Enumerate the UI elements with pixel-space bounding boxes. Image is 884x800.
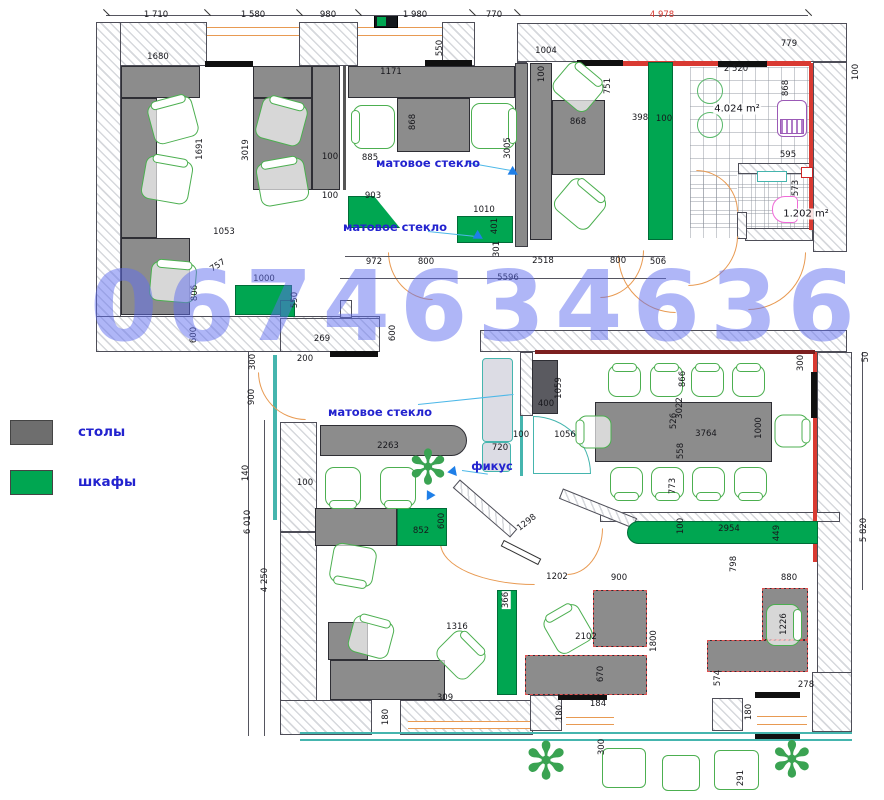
dimension-label: 3019 <box>242 139 251 161</box>
dimension-label: 868 <box>782 80 791 96</box>
dimension-label: 140 <box>242 465 251 481</box>
dimension-label: 600 <box>389 325 398 341</box>
dimension-label: 269 <box>314 335 330 344</box>
annotation-label: матовое стекло <box>376 156 480 170</box>
dimension-label: 670 <box>597 666 606 682</box>
dimension-label: 2518 <box>532 257 554 266</box>
dimension-label: 868 <box>409 114 418 130</box>
legend-row-cabinets: шкафы <box>0 470 220 500</box>
dimension-label: 4 250 <box>261 568 270 592</box>
dimension-label: 1316 <box>446 623 468 632</box>
dimension-label: 806 <box>191 285 200 301</box>
dimension-label: 200 <box>297 355 313 364</box>
dimension-label: 1680 <box>147 53 169 62</box>
dimension-label: 900 <box>248 389 257 405</box>
dimension-label: 366 <box>502 591 511 609</box>
dimension-label: 2263 <box>377 442 399 451</box>
dimension-label: 3005 <box>504 137 513 159</box>
dimension-label: 100 <box>322 153 338 162</box>
floor-plan: ✻✻✻ 1 7101 5809801 9807704 9781680550117… <box>0 0 884 800</box>
dimension-label: 400 <box>538 400 554 409</box>
dimension-label: 2102 <box>575 633 597 642</box>
dimension-label: 751 <box>604 78 613 94</box>
dimension-label: 773 <box>669 478 678 494</box>
dimension-label: 1800 <box>650 630 659 652</box>
dimension-label: 506 <box>650 258 666 267</box>
dimension-label: 600 <box>190 327 199 343</box>
dimension-label: 291 <box>737 770 746 786</box>
dimension-label: 100 <box>513 431 529 440</box>
dimension-label: 600 <box>438 513 447 529</box>
dimension-label: 526 <box>670 413 679 429</box>
annotation-label: матовое стекло <box>343 220 447 234</box>
dimension-label: 903 <box>365 192 381 201</box>
room-area-label: 1.202 m² <box>782 209 830 220</box>
dimension-label: 300 <box>598 739 607 755</box>
dimension-label: 300 <box>249 354 258 370</box>
dimension-label: 573 <box>792 180 801 196</box>
dimension-label: 100 <box>322 192 338 201</box>
dimension-label: 309 <box>437 694 453 703</box>
dimension-label: 398 <box>632 114 648 123</box>
dimension-label: 868 <box>570 118 586 127</box>
annotation-label: матовое стекло <box>328 405 432 419</box>
dimension-label: 278 <box>798 681 814 690</box>
dimension-label: 550 <box>291 292 300 308</box>
dimension-label: 595 <box>780 151 796 160</box>
dimension-label: 449 <box>773 525 782 541</box>
dimension-label: 180 <box>382 709 391 725</box>
dimension-label: 5 820 <box>860 518 869 542</box>
dimension-label: 980 <box>320 11 336 20</box>
dimension-label: 798 <box>730 556 739 572</box>
dimension-label: 1004 <box>535 47 557 56</box>
legend: столы шкафы <box>0 410 220 520</box>
dimension-label: 1202 <box>546 573 568 582</box>
dimension-label: 1000 <box>755 417 764 439</box>
dimension-label: 972 <box>366 258 382 267</box>
dimension-label: 1000 <box>253 275 275 284</box>
dimension-label: 300 <box>797 355 806 371</box>
dimension-label: 100 <box>852 64 861 80</box>
cabinet-color-swatch <box>10 470 53 495</box>
dimension-label: 1226 <box>780 613 789 635</box>
legend-row-desks: столы <box>0 420 220 450</box>
dimension-label: 401 <box>491 218 500 234</box>
dimension-label: 50 <box>862 352 871 363</box>
dimension-label: 900 <box>611 574 627 583</box>
desk-color-swatch <box>10 420 53 445</box>
dimension-label: 1 980 <box>403 11 427 20</box>
dimension-label: 3764 <box>695 430 717 439</box>
dimension-label: 852 <box>413 527 429 536</box>
dimension-label: 184 <box>590 700 606 709</box>
dimension-label: 866 <box>679 371 688 387</box>
dimension-label: 100 <box>297 479 313 488</box>
dimension-label: 800 <box>610 257 626 266</box>
dimension-label: 558 <box>677 443 686 459</box>
dimension-label: 550 <box>436 40 445 56</box>
dimension-label: 1059 <box>555 377 564 399</box>
dimension-label: 770 <box>486 11 502 20</box>
room-area-label: 4.024 m² <box>713 104 761 115</box>
annotation-layer: матовое стекломатовое стекломатовое стек… <box>0 0 884 800</box>
dimension-label: 1 580 <box>241 11 265 20</box>
legend-label-cabinets: шкафы <box>78 474 136 490</box>
dimension-label: 5596 <box>497 274 519 283</box>
dimension-label: 180 <box>745 704 754 720</box>
dimension-label: 574 <box>714 670 723 686</box>
dimension-label: 1171 <box>380 68 402 77</box>
dimension-label: 100 <box>677 518 686 534</box>
dimension-label: 1053 <box>213 228 235 237</box>
dimension-label: 180 <box>556 705 565 721</box>
dimension-label: 100 <box>656 115 672 124</box>
dimension-label: 301 <box>493 241 502 257</box>
legend-label-desks: столы <box>78 424 125 440</box>
dimension-label: 779 <box>781 40 797 49</box>
dimension-label: 100 <box>538 66 547 82</box>
dimension-label: 1691 <box>196 138 205 160</box>
dimension-label: 2 520 <box>724 65 748 74</box>
dimension-label: 720 <box>492 444 508 453</box>
dimension-label: 1010 <box>473 206 495 215</box>
annotation-label: фикус <box>471 459 513 473</box>
dimension-label: 6 010 <box>244 510 253 534</box>
dimension-label: 1056 <box>554 431 576 440</box>
dimension-label: 1 710 <box>144 11 168 20</box>
dimension-label: 800 <box>418 258 434 267</box>
dimension-label: 2954 <box>718 525 740 534</box>
dimension-label: 4 978 <box>650 11 674 20</box>
dimension-label: 880 <box>781 574 797 583</box>
